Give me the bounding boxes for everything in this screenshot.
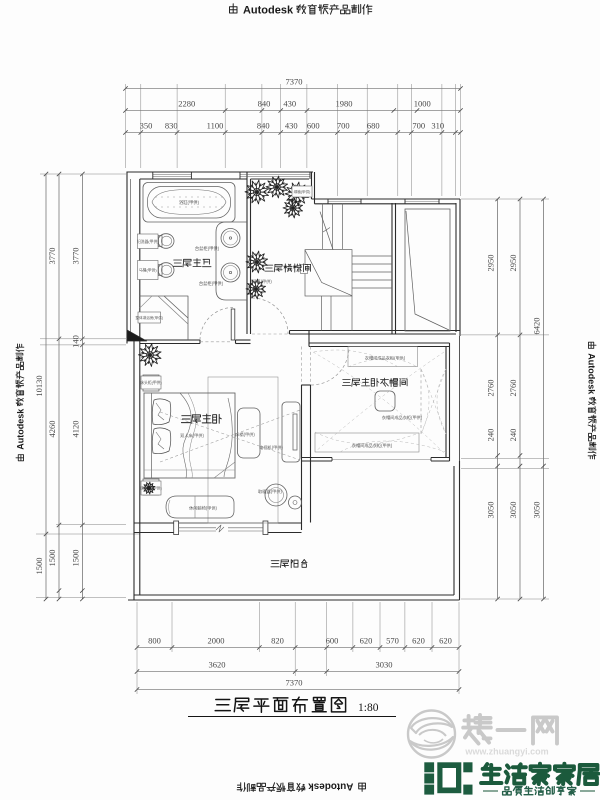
svg-text:10130: 10130 <box>34 375 44 396</box>
svg-text:350: 350 <box>140 121 153 131</box>
svg-text:马桶(甲供): 马桶(甲供) <box>139 268 157 273</box>
svg-text:浴缸(甲供): 浴缸(甲供) <box>179 199 200 206</box>
svg-text:2280: 2280 <box>178 99 195 109</box>
svg-text:7370: 7370 <box>286 77 303 87</box>
svg-text:620: 620 <box>439 636 452 646</box>
svg-text:2950: 2950 <box>508 255 518 272</box>
svg-text:1100: 1100 <box>207 121 224 131</box>
svg-text:700: 700 <box>412 121 425 131</box>
svg-text:绿植(甲供): 绿植(甲供) <box>294 189 311 194</box>
svg-text:800: 800 <box>148 636 161 646</box>
svg-text:840: 840 <box>257 121 270 131</box>
svg-text:台盆柜(甲供): 台盆柜(甲供) <box>199 280 224 287</box>
svg-text:2760: 2760 <box>508 380 518 397</box>
svg-text:700: 700 <box>337 121 350 131</box>
svg-text:600: 600 <box>326 636 339 646</box>
svg-text:衣帽间成品衣柜(甲供): 衣帽间成品衣柜(甲供) <box>352 442 393 449</box>
svg-text:整体淋浴房(甲供): 整体淋浴房(甲供) <box>135 315 163 320</box>
svg-text:3620: 3620 <box>209 660 226 670</box>
svg-text:2000: 2000 <box>208 636 225 646</box>
svg-text:Autodesk: Autodesk <box>15 408 25 450</box>
svg-text:2760: 2760 <box>486 380 496 397</box>
svg-text:1000: 1000 <box>414 99 431 109</box>
svg-text:4260: 4260 <box>47 421 57 438</box>
svg-text:台盆柜(甲供): 台盆柜(甲供) <box>195 245 220 252</box>
svg-text:1:80: 1:80 <box>358 702 379 714</box>
svg-text:衣帽间成品衣柜(甲供): 衣帽间成品衣柜(甲供) <box>365 355 406 362</box>
svg-text:2950: 2950 <box>486 255 496 272</box>
svg-text:取暖器(甲供): 取暖器(甲供) <box>258 488 282 495</box>
svg-text:休闲躺椅(甲供): 休闲躺椅(甲供) <box>189 505 218 512</box>
svg-text:820: 820 <box>271 636 284 646</box>
svg-text:310: 310 <box>431 121 444 131</box>
svg-text:妇洗器(甲供): 妇洗器(甲供) <box>137 239 159 244</box>
svg-text:240: 240 <box>508 429 518 442</box>
svg-text:衣帽间成品衣柜(甲供): 衣帽间成品衣柜(甲供) <box>382 414 423 421</box>
svg-text:3770: 3770 <box>70 248 80 265</box>
svg-text:www.zhuangyi.com: www.zhuangyi.com <box>464 747 548 757</box>
svg-text:Autodesk: Autodesk <box>587 353 597 395</box>
svg-text:4120: 4120 <box>70 421 80 438</box>
svg-text:830: 830 <box>165 121 178 131</box>
svg-text:双人床(甲供): 双人床(甲供) <box>180 432 204 439</box>
svg-text:1500: 1500 <box>70 550 80 567</box>
svg-text:3050: 3050 <box>508 502 518 519</box>
svg-text:7370: 7370 <box>286 678 303 688</box>
svg-text:床头柜(甲供): 床头柜(甲供) <box>140 380 162 385</box>
svg-text:3050: 3050 <box>532 502 542 519</box>
svg-text:430: 430 <box>283 99 296 109</box>
svg-text:140: 140 <box>70 335 80 348</box>
svg-text:680: 680 <box>367 121 380 131</box>
svg-text:3770: 3770 <box>47 248 57 265</box>
svg-text:绿植(甲供): 绿植(甲供) <box>252 278 272 285</box>
svg-text:620: 620 <box>360 636 373 646</box>
svg-text:840: 840 <box>258 99 271 109</box>
svg-text:1500: 1500 <box>34 558 44 575</box>
svg-text:1980: 1980 <box>336 99 353 109</box>
svg-text:3050: 3050 <box>486 502 496 519</box>
svg-text:床榻(甲供): 床榻(甲供) <box>235 431 255 438</box>
svg-text:430: 430 <box>285 121 298 131</box>
svg-text:3030: 3030 <box>376 660 393 670</box>
svg-text:Autodesk: Autodesk <box>243 5 294 17</box>
svg-text:240: 240 <box>486 429 496 442</box>
svg-text:600: 600 <box>307 121 320 131</box>
svg-text:570: 570 <box>386 636 399 646</box>
svg-text:620: 620 <box>412 636 425 646</box>
svg-text:Autodesk: Autodesk <box>308 780 354 791</box>
svg-text:6420: 6420 <box>532 318 542 335</box>
svg-text:1500: 1500 <box>47 550 57 567</box>
